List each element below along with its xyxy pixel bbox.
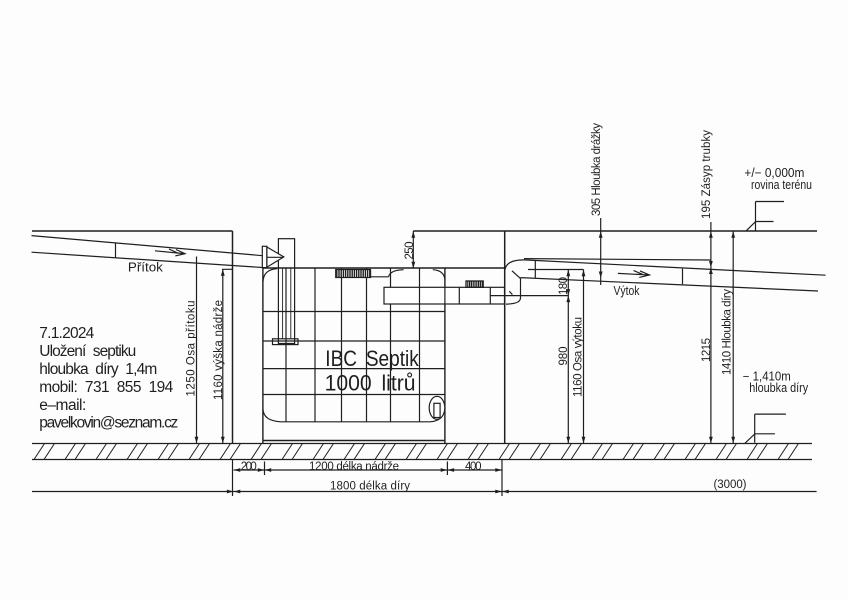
svg-text:1160 Osa výtoku: 1160 Osa výtoku [573, 317, 585, 397]
svg-text:195 Zásyp trubky: 195 Zásyp trubky [701, 130, 713, 219]
svg-text:7.1.2024: 7.1.2024 [39, 325, 94, 342]
svg-text:mobil: 731 855 194: mobil: 731 855 194 [39, 379, 173, 396]
svg-text:(3000): (3000) [714, 479, 747, 491]
svg-text:250: 250 [404, 242, 416, 260]
svg-text:400: 400 [465, 461, 482, 473]
svg-text:Přítok: Přítok [128, 261, 164, 275]
svg-text:1250 Osa přítoku: 1250 Osa přítoku [186, 301, 198, 397]
svg-text:pavelkovin@seznam.cz: pavelkovin@seznam.cz [39, 415, 178, 432]
svg-text:hloubka díry 1,4m: hloubka díry 1,4m [39, 361, 157, 378]
svg-text:1215: 1215 [701, 338, 713, 362]
svg-text:rovina terénu: rovina terénu [751, 178, 812, 192]
svg-text:Výtok: Výtok [614, 284, 641, 298]
svg-text:1800 délka díry: 1800 délka díry [330, 481, 410, 493]
svg-text:1160 výška nádrže: 1160 výška nádrže [213, 300, 225, 400]
svg-text:1200 délka nádrže: 1200 délka nádrže [309, 461, 399, 473]
svg-text:305 Hloubka drážky: 305 Hloubka drážky [591, 123, 603, 216]
svg-text:e–mail:: e–mail: [39, 397, 86, 414]
svg-text:1410 Hloubka díry: 1410 Hloubka díry [722, 289, 734, 375]
svg-text:Uložení septiku: Uložení septiku [39, 343, 136, 360]
svg-text:180: 180 [558, 277, 570, 295]
svg-text:980: 980 [558, 347, 570, 366]
svg-text:200: 200 [241, 461, 257, 473]
svg-text:IBC Septik: IBC Septik [325, 346, 419, 371]
svg-text:hloubka díry: hloubka díry [749, 381, 809, 395]
svg-text:1000 litrů: 1000 litrů [325, 371, 416, 396]
